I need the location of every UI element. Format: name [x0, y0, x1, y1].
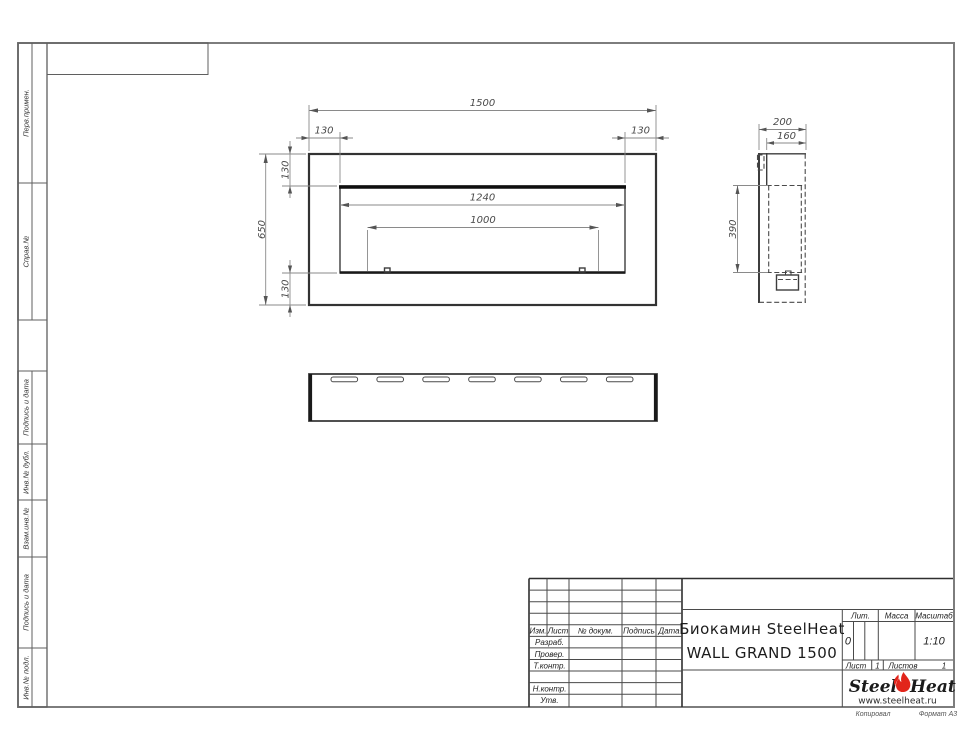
dim-opening-width: 1240	[470, 193, 495, 204]
tb-lit-label: Лит.	[850, 612, 870, 621]
logo-text-heat: Heat	[909, 677, 956, 697]
margin-label-inv-dubl: Инв.№ дубл.	[22, 450, 31, 494]
side-view	[758, 153, 807, 303]
margin-label-podpis-data-2: Подпись и дата	[22, 574, 31, 631]
margin-label-podpis-data-1: Подпись и дата	[22, 379, 31, 436]
vent-slot	[515, 377, 542, 382]
vent-slot	[606, 377, 633, 382]
tb-role-checked: Провер.	[535, 650, 565, 659]
steelheat-logo: Steel Heat www.steelheat.ru	[849, 672, 956, 707]
bottom-view-slots	[331, 377, 633, 382]
tb-role-approved: Утв.	[539, 696, 558, 705]
margin-label-vzam-inv: Взам.инв.№	[22, 507, 31, 549]
tb-sheet-value: 1	[875, 661, 879, 670]
tb-sheets-label: Листов	[887, 661, 917, 670]
margin-label-inv-podl: Инв.№ подл.	[22, 655, 31, 699]
side-view-dimensions: 200 160 390	[728, 117, 806, 273]
tb-header-izm: Изм.	[529, 627, 546, 636]
margin-label-perv-primen: Перв.примен.	[22, 89, 31, 137]
front-view-dimensions: 1500 130 130 650 130 130 1240 10	[257, 98, 669, 317]
dim-burner-width: 1000	[470, 215, 495, 226]
tb-role-developed: Разраб.	[535, 638, 564, 647]
dim-front-height: 650	[257, 220, 268, 239]
tb-header-date: Дата	[657, 627, 680, 636]
margin-label-sprav-no: Справ.№	[22, 235, 31, 267]
vent-slot	[561, 377, 588, 382]
dim-side-body-depth: 160	[777, 131, 796, 142]
front-view	[309, 154, 656, 305]
tb-role-ncontrol: Н.контр.	[533, 684, 567, 693]
tb-lit-value: 0	[845, 636, 852, 648]
dim-side-depth: 200	[773, 117, 792, 128]
vent-slot	[377, 377, 404, 382]
logo-text-steel: Steel	[849, 677, 898, 697]
tb-header-list: Лист	[547, 627, 569, 636]
tb-header-doc: № докум.	[578, 627, 613, 636]
bottom-view	[309, 374, 657, 421]
drawing-canvas: Перв.примен. Справ.№ Подпись и дата Инв.…	[0, 0, 970, 749]
dim-front-top-offset: 130	[281, 160, 292, 179]
tb-header-sign: Подпись	[623, 627, 655, 636]
dim-side-opening-height: 390	[728, 219, 739, 238]
footer-copied-label: Копировал	[856, 711, 891, 718]
title-block: Изм. Лист № докум. Подпись Дата Разраб. …	[529, 579, 956, 708]
document-name-line2: WALL GRAND 1500	[687, 644, 838, 662]
vent-slot	[331, 377, 358, 382]
tb-mass-label: Масса	[885, 612, 909, 621]
drawing-sheet: Перв.примен. Справ.№ Подпись и дата Инв.…	[0, 0, 970, 749]
tb-scale-label: Масштаб	[915, 612, 953, 621]
dim-front-width: 1500	[470, 98, 495, 109]
logo-url: www.steelheat.ru	[858, 697, 936, 707]
vent-slot	[469, 377, 496, 382]
tb-scale-value: 1:10	[923, 636, 945, 648]
corner-reference-box	[47, 43, 208, 75]
sheet-border	[18, 43, 954, 707]
tb-role-tcontrol: Т.контр.	[533, 661, 565, 670]
tb-sheet-label: Лист	[845, 661, 867, 670]
dim-front-right-offset: 130	[631, 126, 650, 137]
dim-front-bottom-offset: 130	[281, 279, 292, 298]
document-name-line1: Биокамин SteelHeat	[679, 620, 845, 638]
footer-format-label: Формат А3	[919, 711, 957, 718]
tb-sheets-value: 1	[942, 661, 946, 670]
margin-column: Перв.примен. Справ.№ Подпись и дата Инв.…	[18, 43, 47, 707]
vent-slot	[423, 377, 450, 382]
dim-front-left-offset: 130	[314, 126, 333, 137]
sheet-footer: Копировал Формат А3	[856, 711, 958, 718]
